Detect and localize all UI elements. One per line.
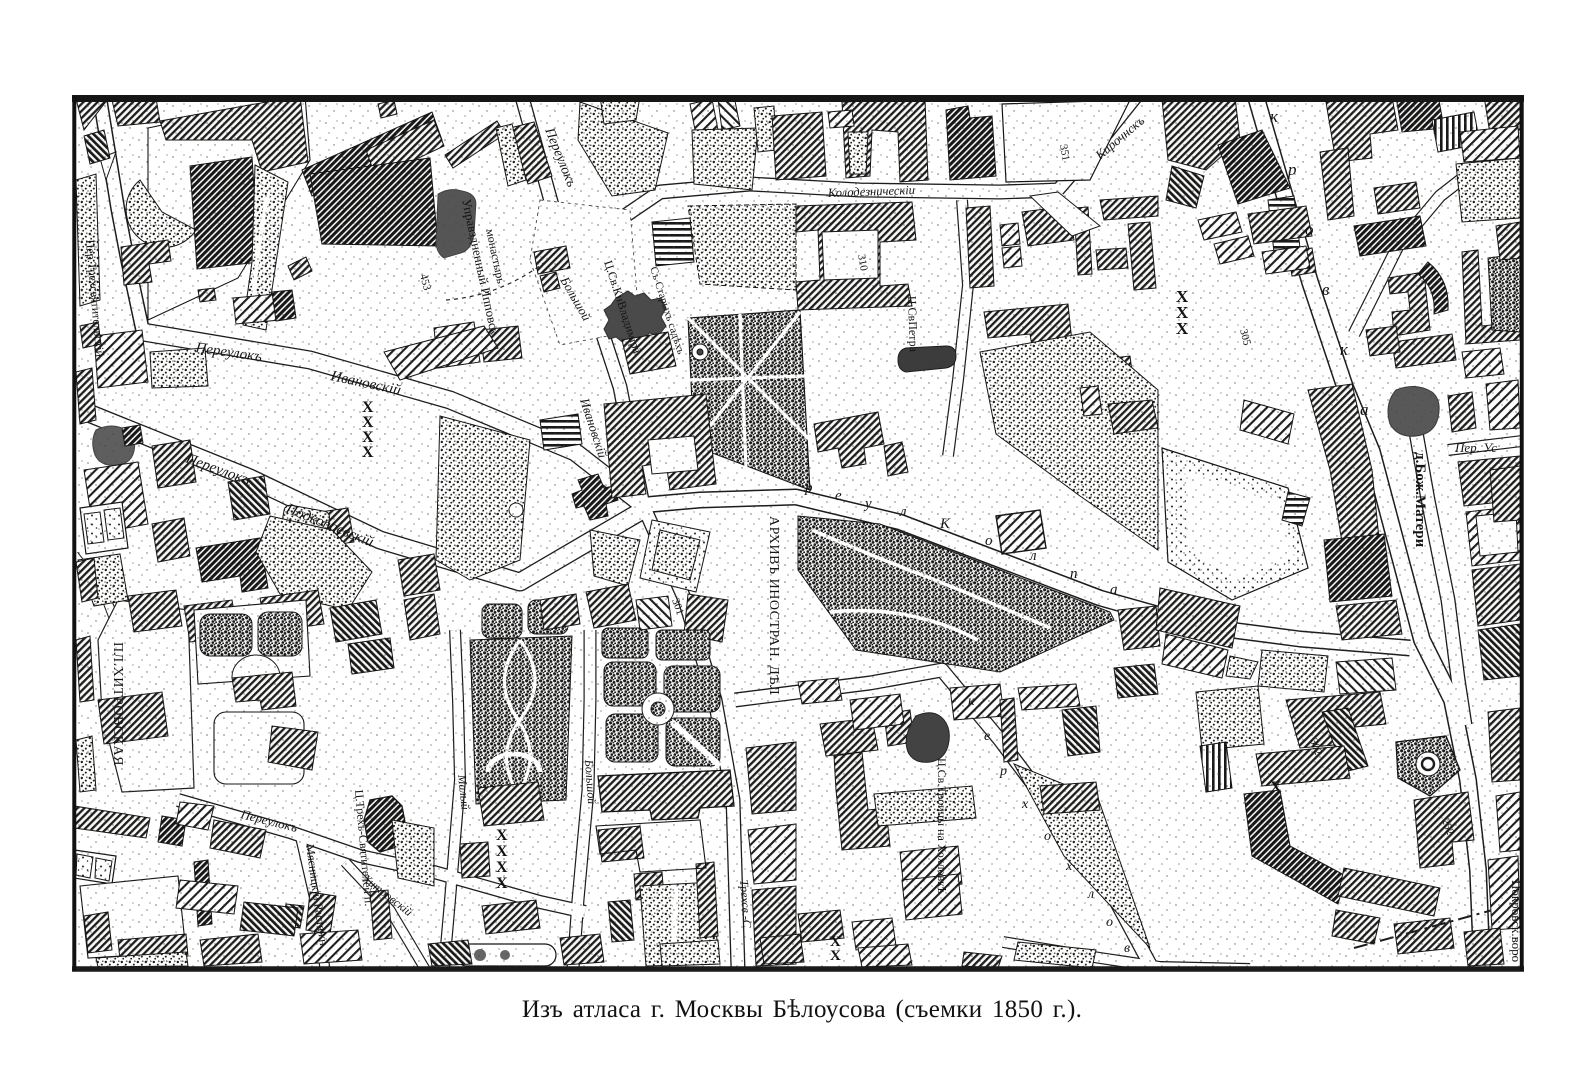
svg-text:Изъ атласа г. Москвы Бѣлоусова: Изъ атласа г. Москвы Бѣлоусова (съемки 1… bbox=[522, 996, 1082, 1023]
